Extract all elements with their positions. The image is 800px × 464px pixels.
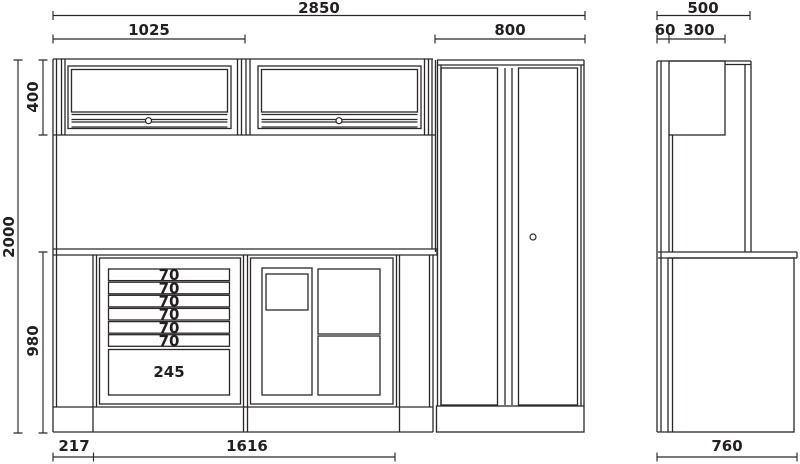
wall-cabinet-2-knob (336, 118, 342, 124)
side-view-structure-lines (657, 61, 797, 432)
tall-cabinet (437, 60, 585, 432)
technical-drawing: 2850 1025 800 500 60 300 2000 400 980 21… (0, 0, 800, 464)
drawing-canvas: 2850 1025 800 500 60 300 2000 400 980 21… (0, 0, 800, 464)
dim-workbench-width-label: 1616 (226, 437, 268, 455)
base-structure-lines (53, 255, 433, 432)
drawer-70-6-label: 70 (159, 332, 180, 350)
dim-workbench-depth-label: 760 (711, 437, 742, 455)
door-base-unit (251, 258, 394, 404)
tall-cabinet-knob (530, 234, 536, 240)
tall-cabinet-door-left (441, 68, 498, 405)
dim-total-depth-label: 500 (687, 0, 718, 17)
dim-panel-depth-label: 60 (655, 21, 676, 39)
tall-cabinet-frame-lines (437, 60, 584, 406)
dim-wall-cabinet-depth-label: 300 (683, 21, 714, 39)
dim-wall-cabinet-width-label: 1025 (128, 21, 170, 39)
wall-cabinet-2 (258, 66, 421, 129)
side-workbench (668, 258, 794, 432)
door-unit-body (251, 258, 394, 404)
dim-base-height-label: 980 (24, 325, 42, 356)
wall-cabinet-1-knob (146, 118, 152, 124)
dim-left-offset-label: 217 (58, 437, 89, 455)
base-door (262, 268, 312, 395)
dim-total-width-label: 2850 (298, 0, 340, 17)
drawer-245-label: 245 (153, 363, 184, 381)
drawer-base-unit: 70 70 70 70 70 70 245 (100, 258, 241, 404)
wall-cabinet-2-door-panel (262, 70, 418, 113)
dim-total-height-label: 2000 (0, 216, 18, 258)
dim-wall-cabinet-height-label: 400 (24, 81, 42, 112)
front-view: 70 70 70 70 70 70 245 (53, 59, 584, 432)
tall-cabinet-door-right (519, 68, 578, 405)
base-panel-lower (318, 336, 380, 395)
base-door-top-panel (266, 274, 308, 310)
base-panel-upper (318, 269, 380, 334)
wall-cabinet-1 (68, 66, 231, 129)
side-view (657, 61, 797, 432)
worktop-lines (53, 249, 437, 255)
side-wall-cabinet (669, 61, 725, 135)
tall-cabinet-plinth (437, 406, 585, 432)
dim-tall-cabinet-width-label: 800 (494, 21, 525, 39)
wall-cabinet-1-door-panel (72, 70, 228, 113)
dim-offset-and-bench-width (53, 453, 395, 462)
